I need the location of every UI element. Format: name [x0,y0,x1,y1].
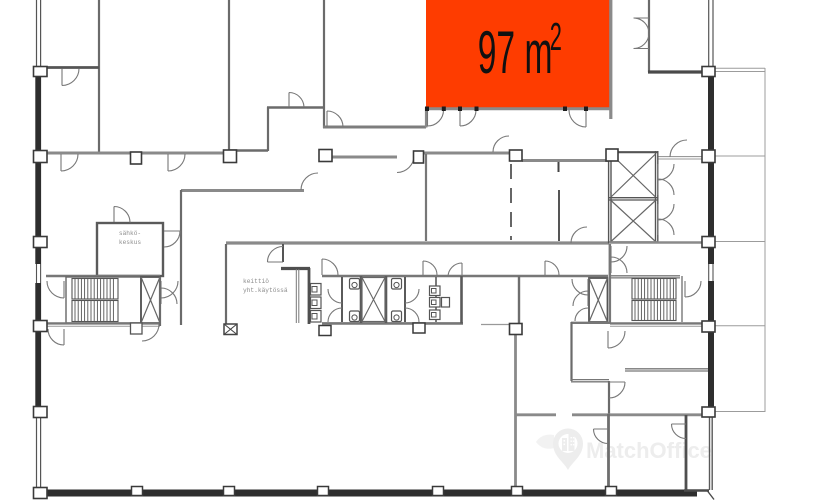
svg-text:97 m: 97 m [478,20,553,87]
svg-text:MatchOffice: MatchOffice [586,438,712,463]
svg-text:keskus: keskus [119,239,142,246]
svg-text:sähkö-: sähkö- [119,230,141,237]
svg-text:keittiö: keittiö [243,278,269,285]
svg-text:2: 2 [550,14,562,58]
svg-text:yht.käytössä: yht.käytössä [243,287,288,294]
